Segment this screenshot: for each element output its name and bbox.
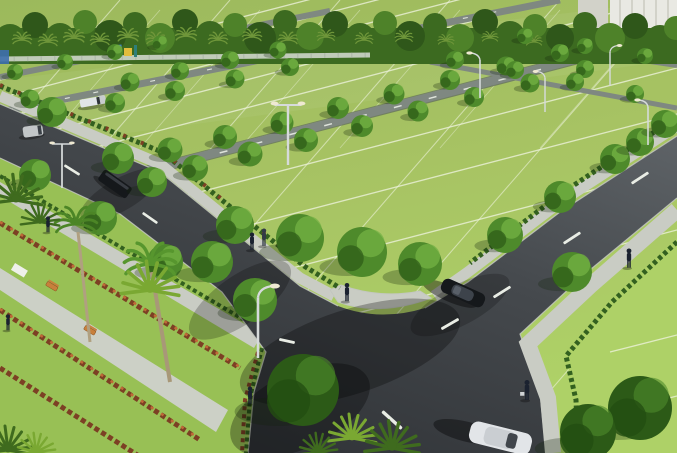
sign-board xyxy=(0,50,9,64)
render-image xyxy=(0,0,677,453)
plot-layout-scene xyxy=(0,0,677,453)
